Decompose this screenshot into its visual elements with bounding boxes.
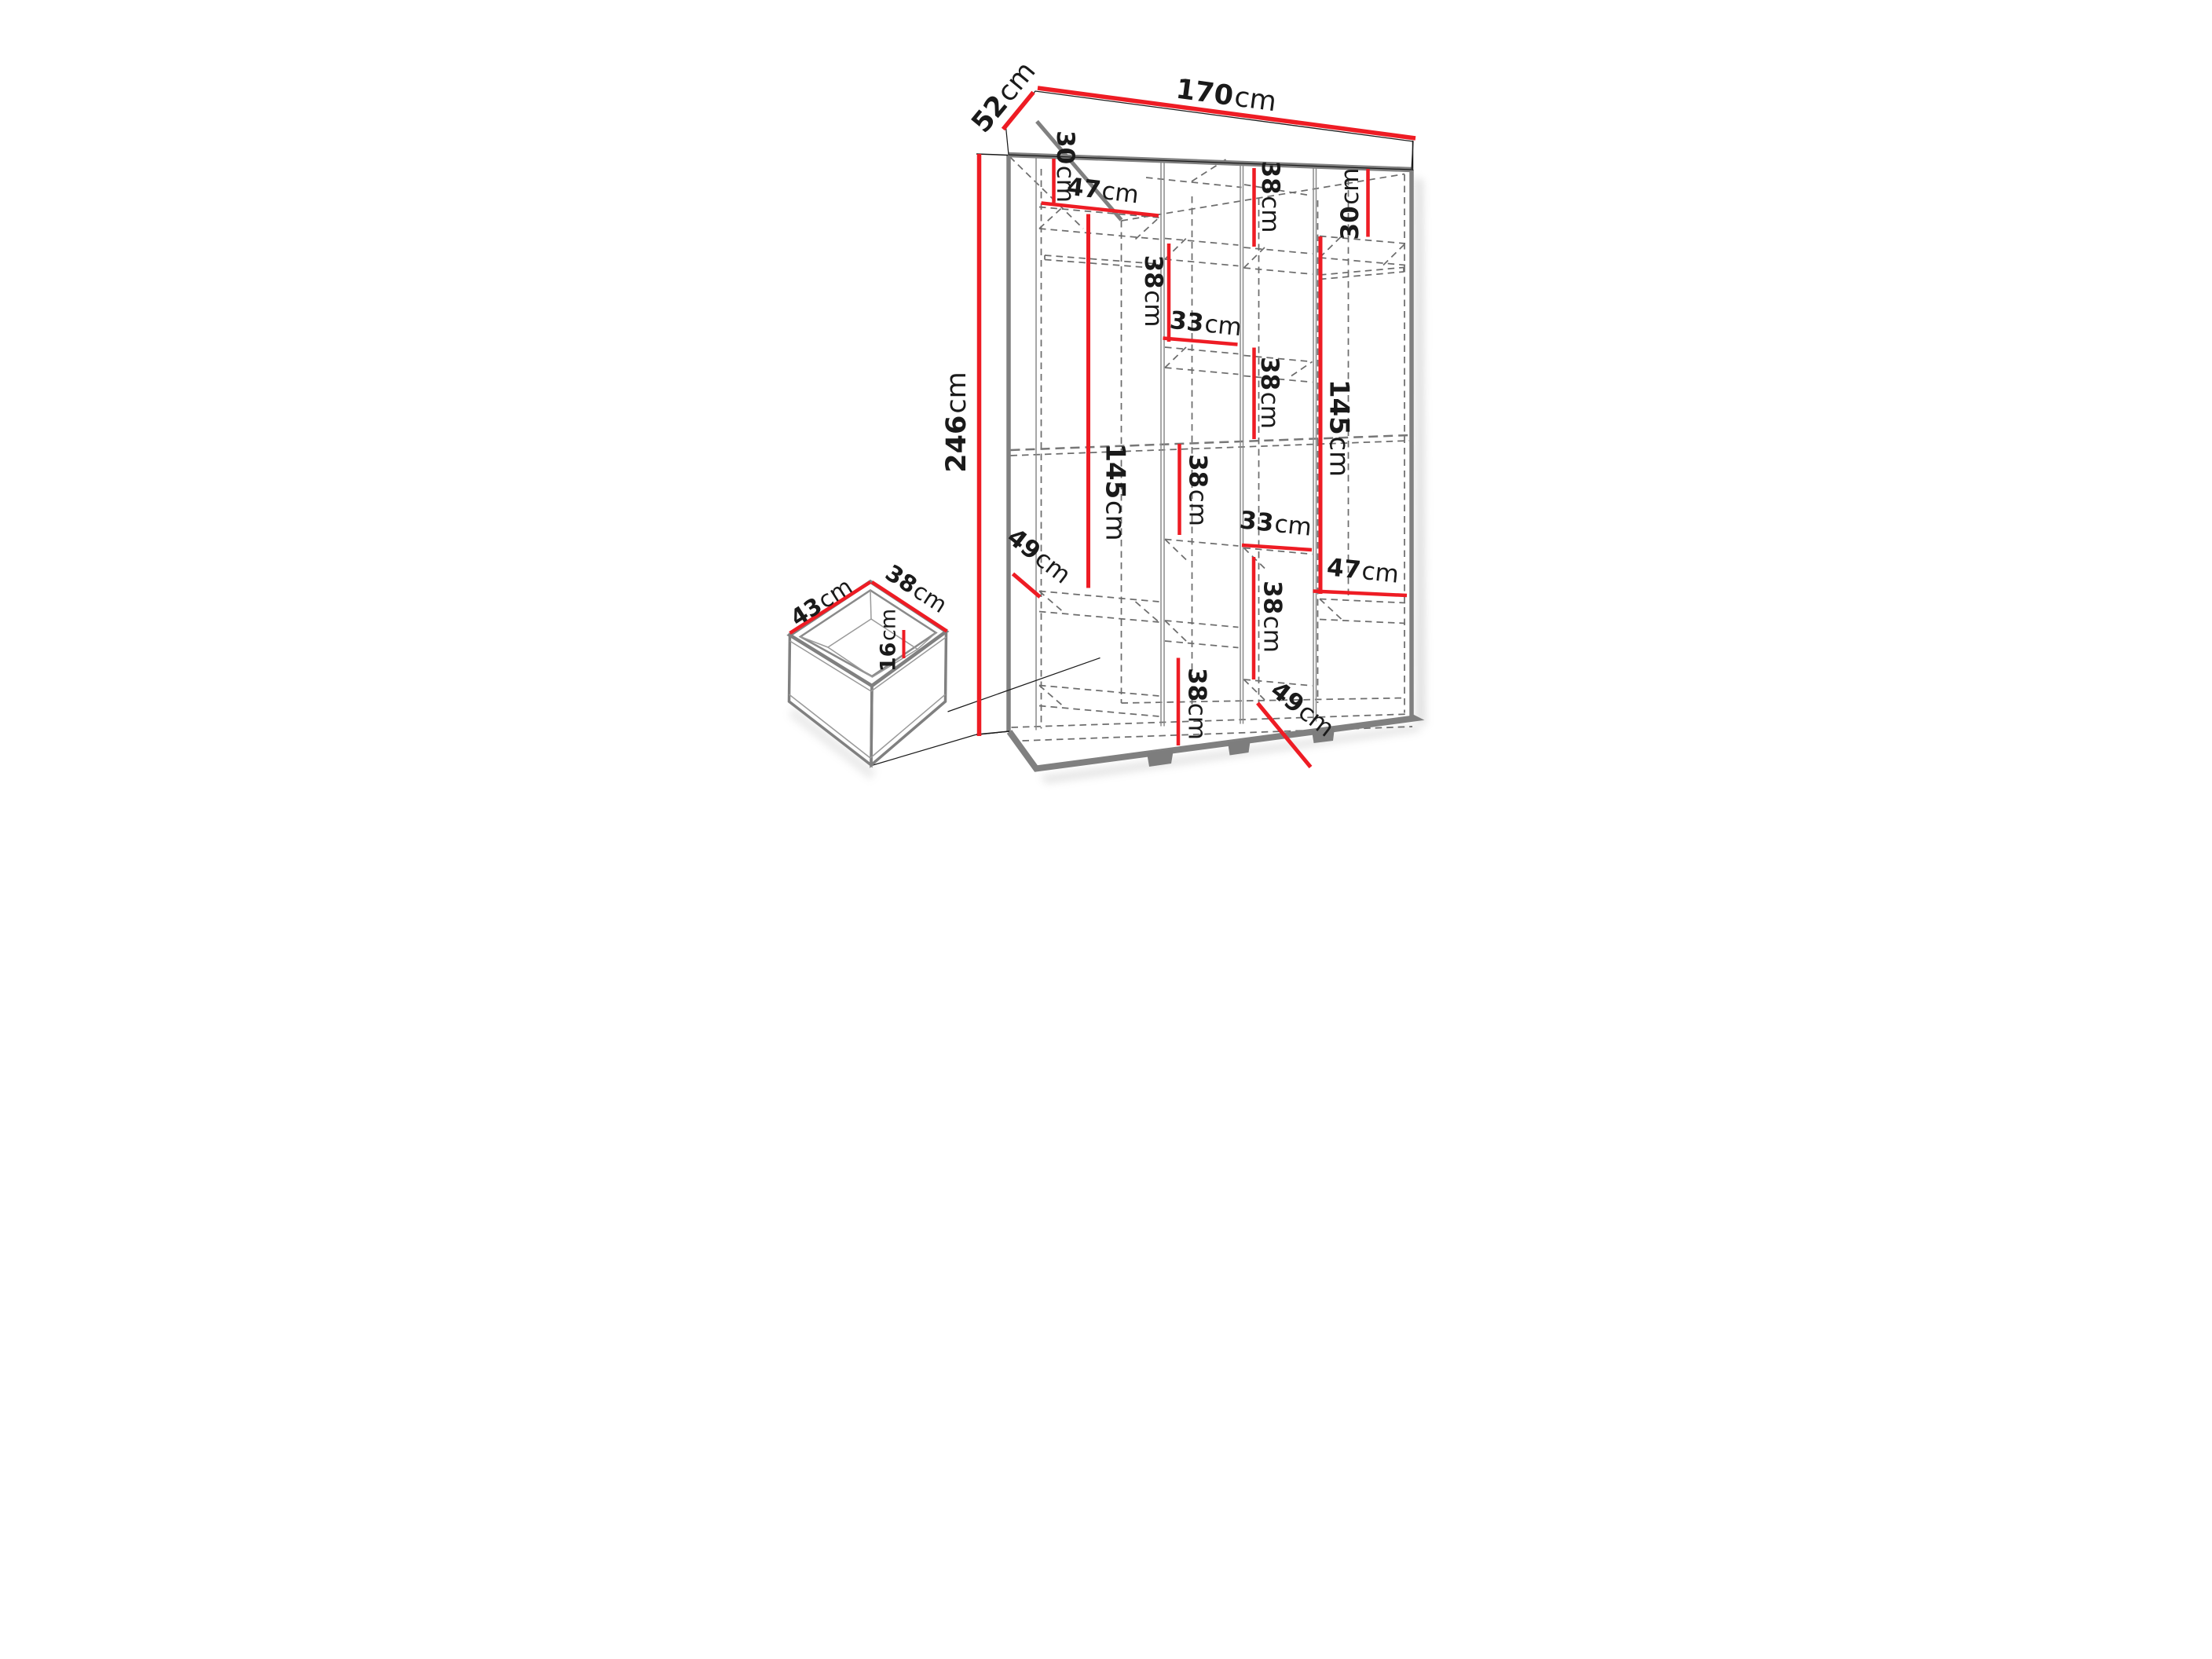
label-col3-38c: 38cm [1258, 580, 1287, 653]
drawer-detail: 43cm 38cm 16cm [786, 559, 952, 765]
label-col2-38b: 38cm [1184, 454, 1212, 526]
label-col2-38c: 38cm [1183, 668, 1211, 740]
label-drawer-16: 16cm [876, 609, 900, 672]
label-col4-30: 30cm [1336, 168, 1364, 240]
label-col3-38b: 38cm [1255, 357, 1284, 429]
label-col3-38a: 38cm [1256, 161, 1284, 233]
label-height-246: 246cm [941, 372, 972, 472]
label-col4-145: 145cm [1324, 379, 1355, 477]
dimension-ticks [976, 154, 1009, 734]
label-col2-38a: 38cm [1139, 255, 1167, 328]
wardrobe-dimension-diagram: 170cm 52cm 246cm 30cm 47cm 145cm 49cm 38… [553, 0, 1659, 829]
label-col1-145: 145cm [1100, 443, 1131, 540]
